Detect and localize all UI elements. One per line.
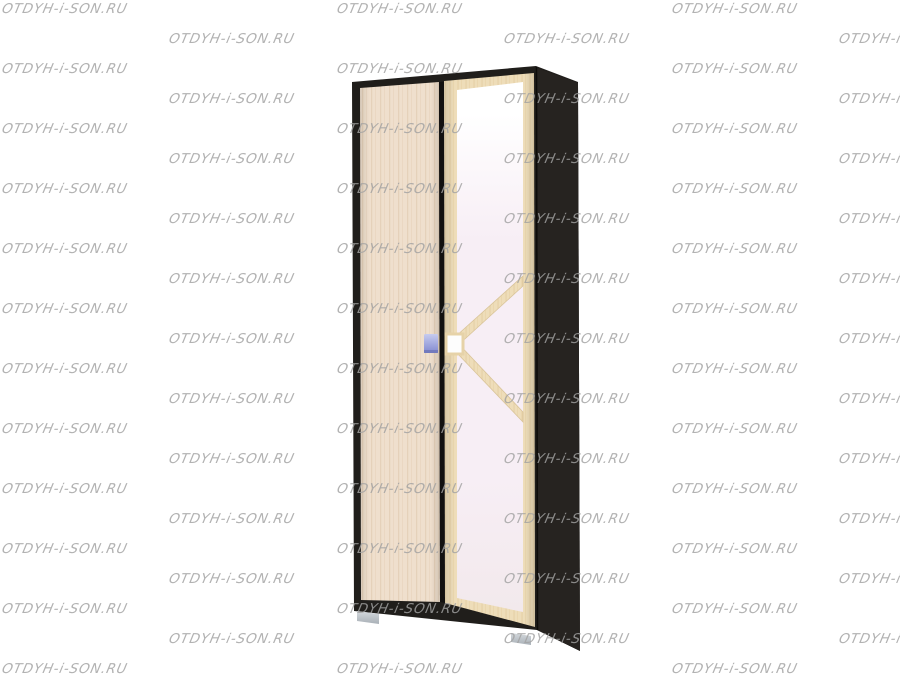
mirror <box>457 82 523 612</box>
mirror-door-handle <box>446 334 463 354</box>
wardrobe-side-panel <box>537 68 580 651</box>
left-door-knob-shadow <box>424 350 438 353</box>
door-gap <box>439 82 445 604</box>
front-corner-edge <box>537 67 538 630</box>
product-photo: OTDYH-i-SON.RUOTDYH-i-SON.RUOTDYH-i-SON.… <box>0 0 900 675</box>
front-right-foot <box>511 633 531 645</box>
wardrobe-render <box>0 0 900 675</box>
